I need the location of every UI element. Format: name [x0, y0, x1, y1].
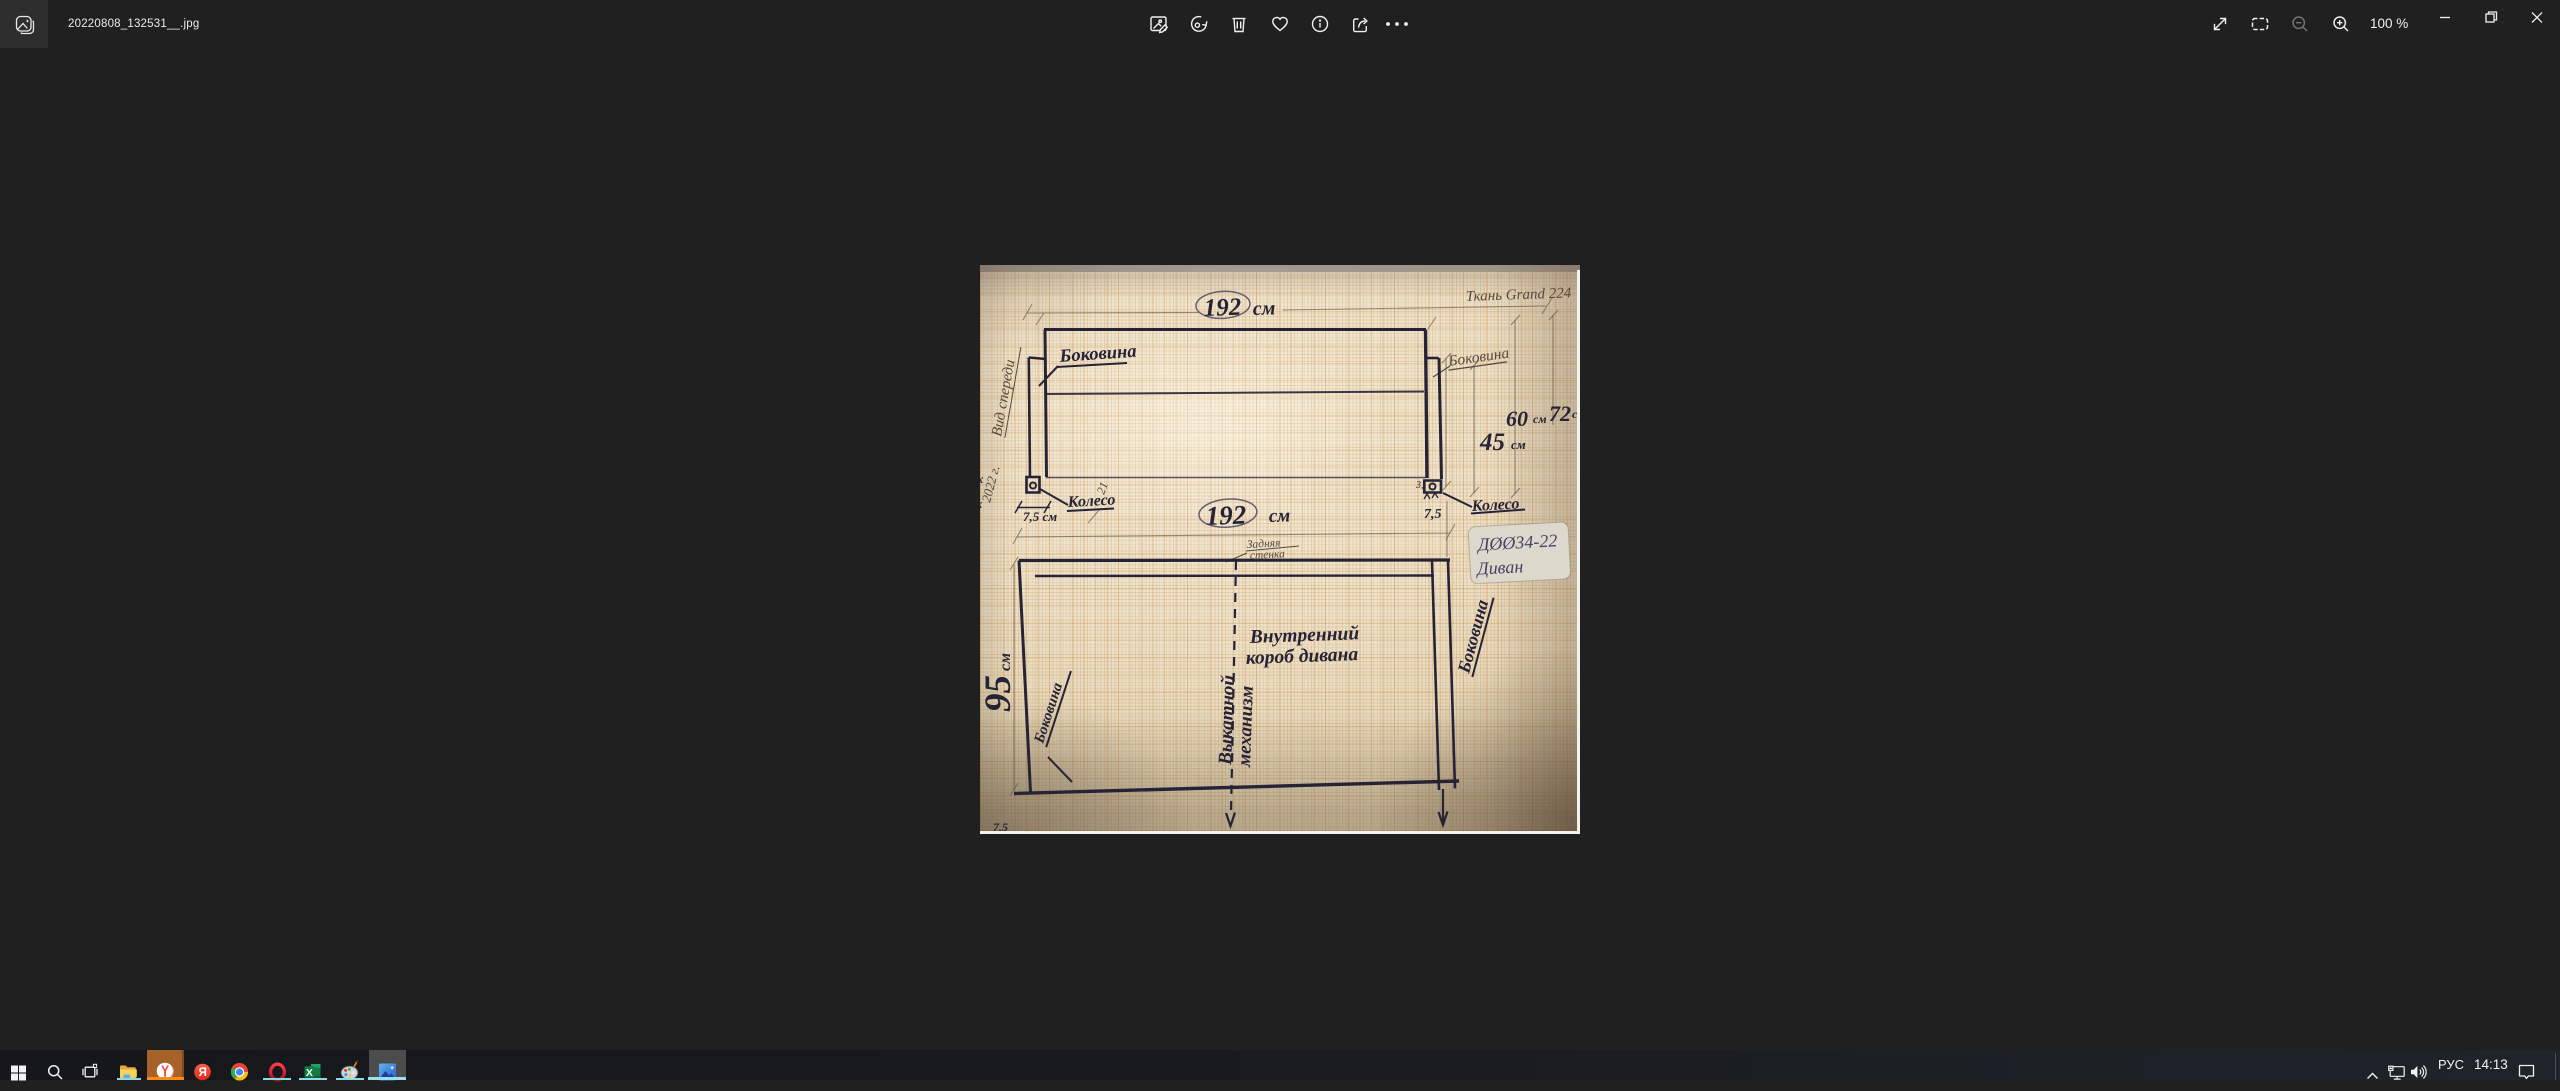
svg-text:72: 72: [1549, 401, 1571, 426]
svg-text:Я: Я: [199, 1067, 207, 1079]
svg-text:короб дивана: короб дивана: [1245, 644, 1358, 669]
svg-text:Вид спереди: Вид спереди: [989, 358, 1018, 437]
svg-text:Ткань Grand 224: Ткань Grand 224: [1466, 285, 1572, 305]
svg-text:60: 60: [1506, 406, 1528, 431]
svg-text:механизм: механизм: [1234, 685, 1258, 768]
svg-text:2022 г.: 2022 г.: [980, 464, 1003, 504]
svg-text:ДØØ34-22: ДØØ34-22: [1475, 530, 1557, 554]
svg-text:Колесо: Колесо: [1470, 496, 1519, 516]
svg-text:95 см: 95 см: [980, 653, 1019, 712]
svg-text:45: 45: [1479, 429, 1505, 456]
svg-text:Боковина: Боковина: [1453, 597, 1492, 676]
svg-text:3,: 3,: [1415, 480, 1424, 491]
svg-text:см: см: [1252, 297, 1276, 320]
svg-text:см: см: [1533, 412, 1547, 426]
svg-text:см: см: [1511, 437, 1526, 452]
svg-text:7,5: 7,5: [1424, 507, 1442, 522]
svg-text:Колесо: Колесо: [1066, 492, 1115, 512]
svg-text:Диван: Диван: [1475, 556, 1524, 578]
svg-text:7,5 см: 7,5 см: [1023, 509, 1057, 524]
svg-text:см: см: [1268, 505, 1290, 527]
